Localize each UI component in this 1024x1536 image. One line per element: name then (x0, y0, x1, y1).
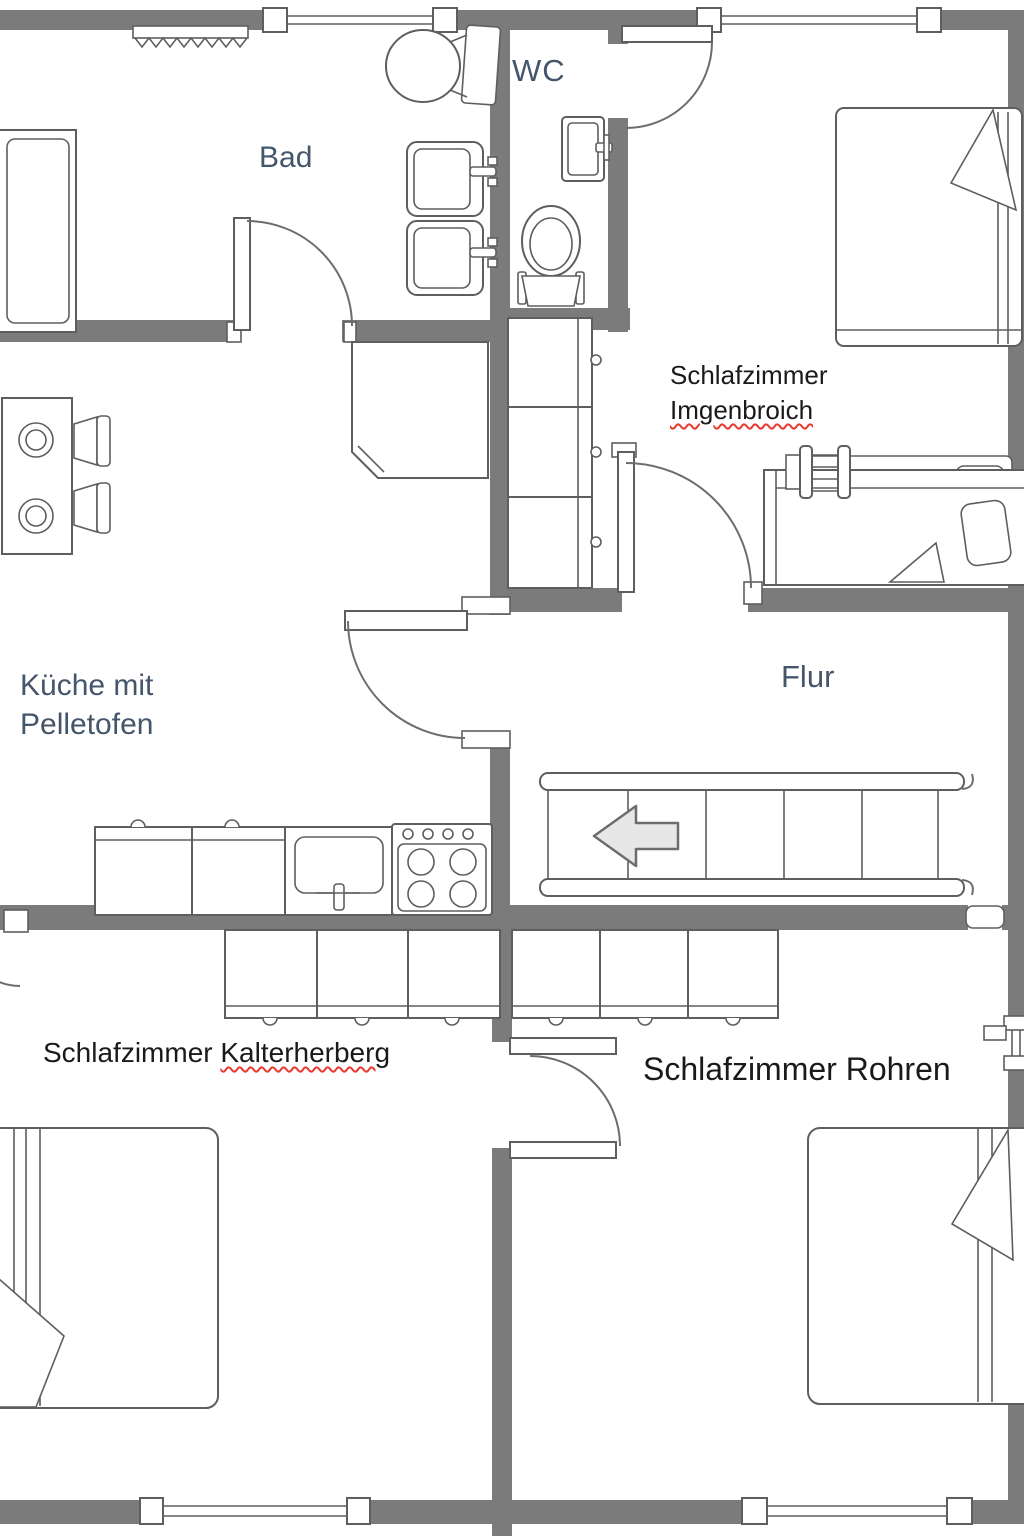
room-label-bad: Bad (259, 141, 312, 175)
room-label-wc: WC (512, 53, 566, 89)
imgenbroich-label-line1: Schlafzimmer (670, 358, 827, 393)
rohren-bed (808, 1128, 1024, 1404)
kalterherberg-wardrobe (225, 930, 500, 1025)
kitchen-counter (95, 820, 285, 915)
dining-table (2, 398, 72, 554)
stove-burners (392, 824, 492, 915)
room-label-rohren: Schlafzimmer Rohren (643, 1051, 951, 1088)
imgenbroich-label-line2: Imgenbroich (670, 393, 827, 428)
kalterherberg-label-name: Kalterherberg (220, 1037, 390, 1068)
imgenbroich-double-bed (836, 108, 1022, 346)
chair (74, 483, 110, 533)
floorplan-canvas: Bad WC Küche mit Pelletofen Flur Schlafz… (0, 0, 1024, 1536)
stair-handrail (540, 773, 964, 790)
rohren-wardrobe (512, 930, 778, 1025)
kalterherberg-label-prefix: Schlafzimmer (43, 1037, 220, 1068)
bathtub (0, 130, 76, 332)
room-label-imgenbroich: Schlafzimmer Imgenbroich (670, 358, 827, 428)
kueche-label-line2: Pelletofen (20, 705, 153, 744)
stair-handrail (540, 879, 964, 896)
wc-hand-basin (562, 117, 612, 181)
room-label-kueche: Küche mit Pelletofen (20, 666, 153, 744)
kueche-label-line1: Küche mit (20, 666, 153, 705)
tall-cabinet (508, 318, 601, 588)
pellet-stove (352, 342, 488, 478)
bad-toilet (386, 25, 501, 105)
room-label-flur: Flur (781, 659, 834, 695)
wc-toilet (518, 206, 584, 306)
floorplan-drawing (0, 0, 1024, 1536)
radiator-mark (984, 1026, 1006, 1040)
room-label-kalterherberg: Schlafzimmer Kalterherberg (43, 1037, 390, 1069)
pillow (960, 499, 1012, 567)
stair-opening (966, 906, 1004, 928)
kitchen-sink (285, 827, 392, 915)
chair (74, 416, 110, 466)
kalterherberg-bed (0, 1128, 218, 1408)
